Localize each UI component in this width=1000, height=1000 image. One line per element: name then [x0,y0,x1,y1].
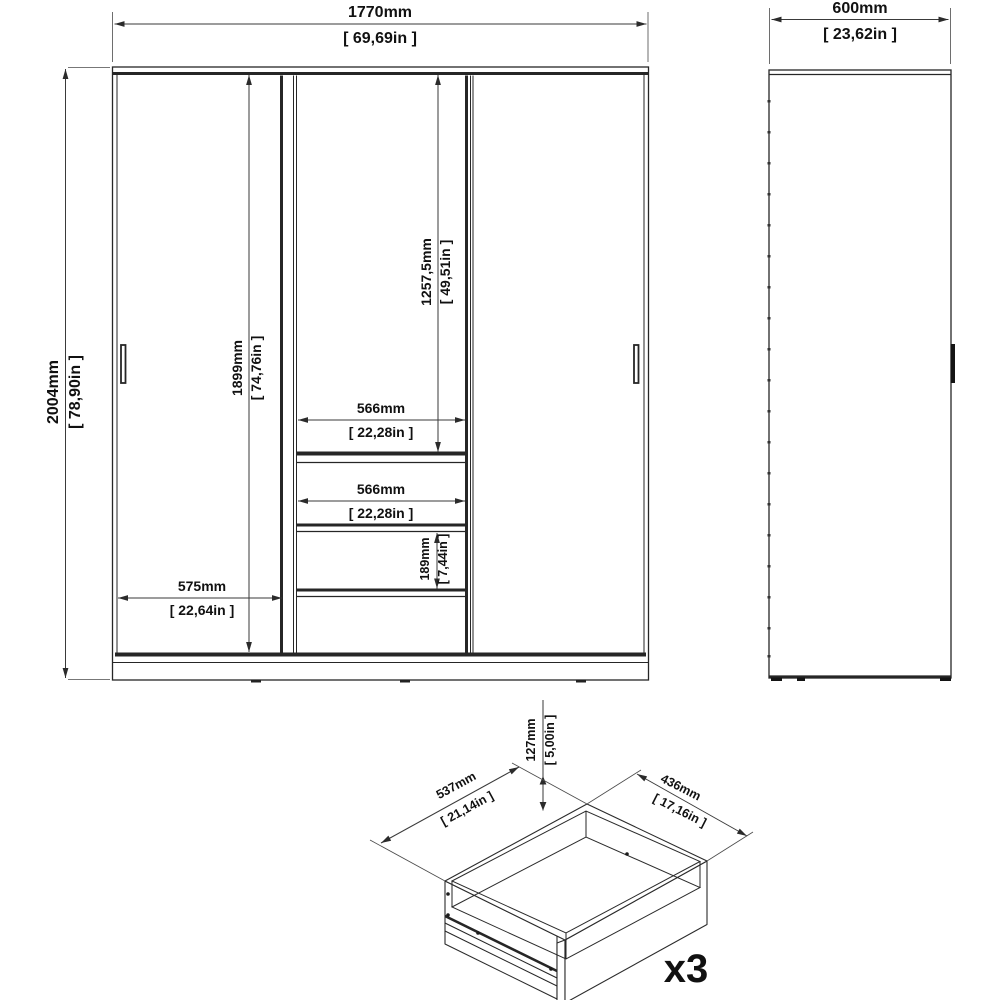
dim-depth: 600mm [ 23,62in ] [770,0,951,64]
front-foot-left [251,680,261,683]
drawer-quantity-label: x3 [664,947,709,991]
dim-door-width: 575mm [ 22,64in ] [118,578,282,618]
drawer-screw-2 [446,913,450,917]
side-foot-mid [797,678,805,682]
dim-overall-width: 1770mm [ 69,69in ] [113,4,649,62]
dim-shelf-width-upper: 566mm [ 22,28in ] [298,400,465,440]
shelf-width-upper-in-label: [ 22,28in ] [349,424,414,440]
dim-hanging-section: 1257,5mm [ 49,51in ] [418,75,453,452]
side-foot-left [771,678,782,682]
shelf-width-upper-mm-label: 566mm [357,400,405,416]
drawer-front-edge [557,940,565,1000]
overall-height-mm-label: 2004mm [45,360,62,424]
side-door-handle [951,344,956,383]
overall-width-in-label: [ 69,69in ] [343,30,417,47]
interior-height-mm-label: 1899mm [229,340,245,396]
side-view [768,70,956,681]
front-foot-right [576,680,586,683]
drawer-screw-4 [549,967,553,971]
drawer-height-mm-label: 189mm [418,537,432,580]
dim-drawer-height: 189mm [ 7,44in ] [418,533,450,589]
drawer-box-height-in-label: [ 5,00in ] [543,715,557,766]
depth-mm-label: 600mm [832,0,887,17]
overall-width-mm-label: 1770mm [348,4,412,21]
shelf-width-lower-mm-label: 566mm [357,481,405,497]
wardrobe-dimension-drawing: 1770mm [ 69,69in ] 2004mm [ 78,90in ] 18… [0,0,1000,1000]
drawer-box-height-mm-label: 127mm [524,718,538,761]
dim-interior-height: 1899mm [ 74,76in ] [229,75,264,652]
hanging-section-mm-label: 1257,5mm [418,238,434,306]
side-foot-right [940,678,951,682]
hanging-section-in-label: [ 49,51in ] [437,240,453,305]
drawer-height-in-label: [ 7,44in ] [436,534,450,585]
drawer-screw-3 [476,931,480,935]
dim-shelf-width-lower: 566mm [ 22,28in ] [298,481,465,521]
left-door-handle [121,345,126,383]
front-foot-middle [400,680,410,683]
drawer-screw-1 [446,892,450,896]
interior-height-in-label: [ 74,76in ] [248,336,264,401]
door-width-in-label: [ 22,64in ] [170,602,235,618]
technical-drawing-page: 1770mm [ 69,69in ] 2004mm [ 78,90in ] 18… [0,0,1000,1000]
dim-overall-height: 2004mm [ 78,90in ] [45,68,110,680]
side-outline [769,70,951,678]
right-door-handle [634,345,639,383]
door-width-mm-label: 575mm [178,578,226,594]
drawer-floor-screw [625,852,629,856]
depth-in-label: [ 23,62in ] [823,26,897,43]
overall-height-in-label: [ 78,90in ] [67,355,84,429]
dim-drawer-box-height: 127mm [ 5,00in ] [524,700,557,811]
shelf-width-lower-in-label: [ 22,28in ] [349,505,414,521]
